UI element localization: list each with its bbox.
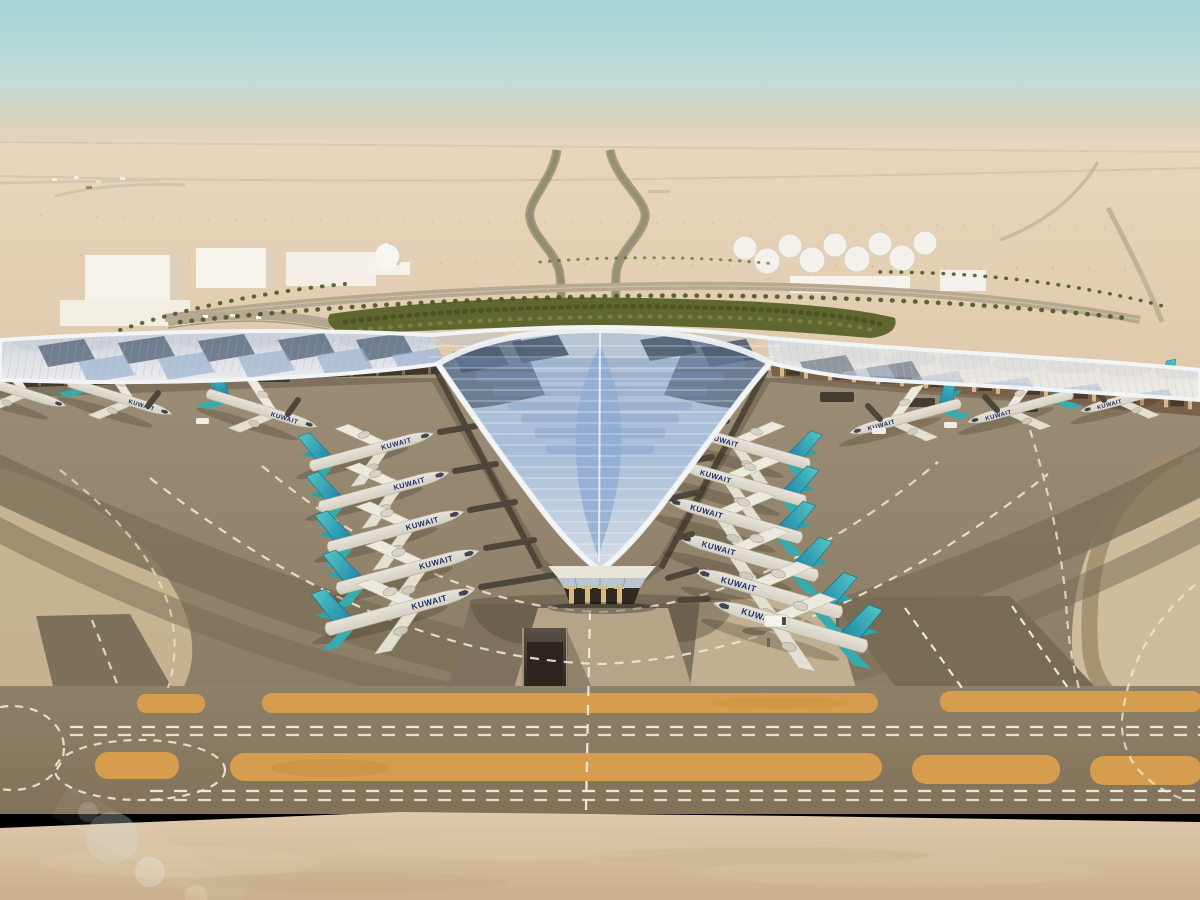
apron-post	[836, 618, 839, 627]
pavilion-shadow	[548, 602, 656, 614]
warehouse	[286, 252, 376, 286]
service-truck	[196, 418, 209, 424]
sand-mottle-dark	[590, 847, 930, 865]
sand-foreground	[0, 800, 1200, 900]
service-truck	[872, 428, 886, 434]
render-canvas: KUWAIT KUWAIT KUWAIT KUWAIT KUWAIT KUWAI…	[0, 0, 1200, 900]
van-windshield	[782, 617, 786, 625]
apron-post	[767, 638, 770, 647]
ochre-mottle	[270, 759, 390, 777]
sky	[0, 0, 1200, 160]
warehouse-shade	[266, 251, 274, 288]
service-truck	[944, 422, 957, 428]
ochre-mottle	[710, 697, 850, 709]
warehouse	[196, 248, 266, 288]
pavilion-fascia	[548, 566, 656, 578]
pier-spine	[599, 332, 600, 562]
aerial-airport-rendering: Aerial architectural rendering of a dese…	[0, 0, 1200, 900]
warehouse	[85, 255, 170, 303]
van-shadow	[742, 627, 774, 635]
distant-runway-aircraft	[648, 190, 670, 193]
warehouse-shade	[170, 258, 180, 303]
tank-farm-shed	[940, 270, 986, 291]
sky-gradient	[0, 0, 1200, 160]
